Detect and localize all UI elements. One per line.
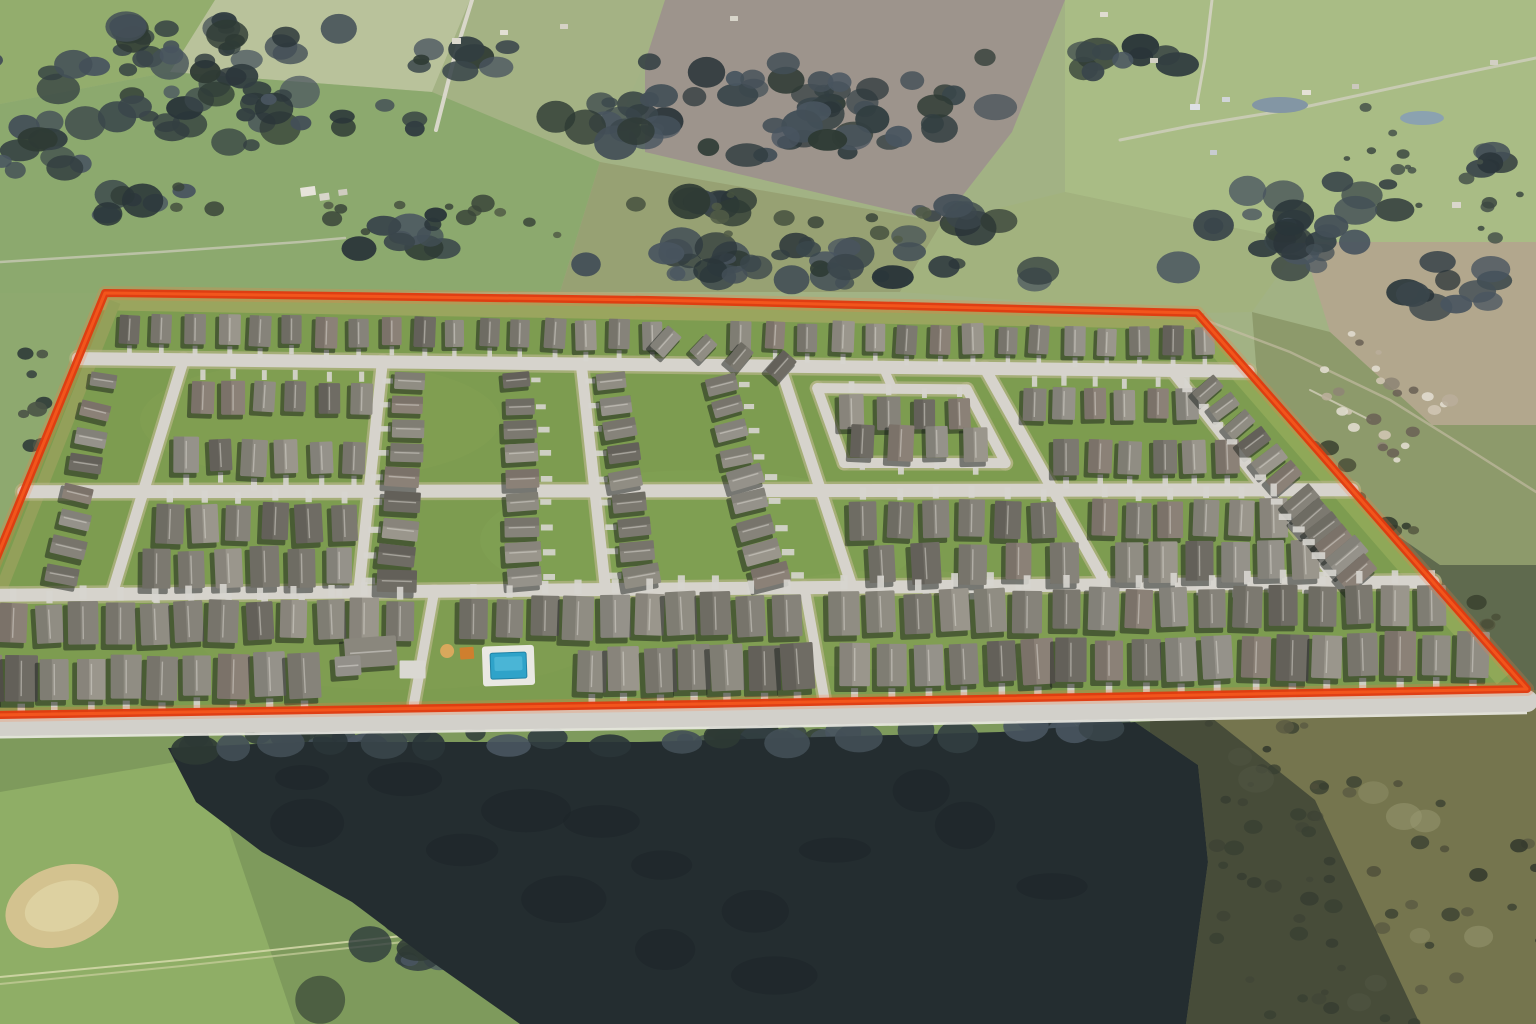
house: [1005, 543, 1031, 580]
forest-dark-blotch: [893, 769, 950, 812]
forest-edge-canopy: [589, 734, 631, 757]
house: [1201, 635, 1234, 680]
house: [503, 420, 537, 440]
driveway: [200, 370, 205, 381]
driveway: [507, 585, 513, 597]
house: [392, 419, 425, 438]
driveway: [886, 384, 891, 395]
driveway: [1293, 526, 1305, 532]
forest-edge-canopy: [412, 731, 445, 760]
driveway: [290, 586, 296, 598]
house: [839, 643, 870, 687]
house: [40, 659, 69, 700]
aerial-photo-canvas: [0, 0, 1536, 1024]
house: [0, 603, 28, 643]
house: [504, 517, 539, 537]
driveway: [1024, 575, 1031, 589]
house: [1380, 585, 1409, 626]
house: [248, 315, 271, 347]
pavilion-orange-roof: [460, 647, 475, 660]
driveway: [541, 525, 553, 531]
house: [1165, 637, 1198, 682]
driveway: [220, 584, 227, 598]
house: [575, 320, 597, 351]
driveway: [185, 586, 192, 599]
house: [1185, 541, 1213, 581]
forest-dark-blotch: [367, 762, 442, 796]
driveway: [470, 584, 477, 597]
driveway: [540, 499, 551, 505]
driveway: [1227, 439, 1238, 444]
house: [612, 491, 648, 513]
house: [850, 424, 875, 458]
driveway: [791, 572, 804, 578]
driveway: [262, 370, 267, 380]
house: [1091, 499, 1118, 536]
pond: [1252, 97, 1308, 113]
house: [342, 442, 366, 475]
house: [865, 590, 896, 633]
house: [1192, 499, 1219, 537]
forest-dark-blotch: [426, 834, 498, 866]
driveway: [536, 404, 546, 409]
driveway: [1356, 571, 1362, 584]
driveway: [306, 490, 312, 503]
house: [608, 319, 630, 350]
driveway: [1203, 486, 1209, 498]
driveway: [293, 370, 298, 380]
house: [925, 426, 948, 458]
driveway: [152, 588, 159, 601]
house: [384, 466, 420, 488]
driveway: [1271, 499, 1283, 505]
house: [619, 540, 655, 562]
distant-building: [1490, 60, 1498, 65]
house: [1182, 440, 1207, 475]
house: [383, 491, 421, 514]
house: [479, 318, 500, 347]
driveway: [1213, 422, 1223, 427]
house: [1055, 637, 1087, 682]
house: [1269, 585, 1298, 626]
driveway: [1271, 484, 1277, 497]
house: [146, 656, 178, 701]
house: [1064, 326, 1086, 356]
driveway: [117, 587, 124, 601]
house: [106, 602, 136, 644]
house: [596, 371, 627, 391]
house: [998, 327, 1018, 355]
house: [214, 548, 243, 588]
house: [1095, 640, 1123, 680]
house: [111, 655, 142, 699]
house: [914, 399, 935, 429]
forest-dark-blotch: [635, 929, 695, 970]
driveway: [987, 572, 994, 586]
forest-dark-blotch: [631, 851, 692, 880]
house: [280, 600, 308, 638]
swimming-pool: [490, 652, 527, 679]
driveway: [849, 381, 855, 392]
house: [348, 319, 369, 348]
house: [1113, 390, 1135, 421]
driveway: [359, 372, 364, 382]
house: [831, 320, 855, 352]
house: [504, 443, 538, 464]
driveway: [922, 388, 927, 398]
house: [939, 588, 971, 632]
house: [665, 591, 698, 636]
house: [506, 492, 540, 513]
driveway: [784, 580, 791, 594]
house: [1125, 502, 1151, 538]
driveway: [1209, 575, 1215, 588]
driveway: [769, 498, 781, 504]
distant-building: [730, 16, 738, 21]
house: [253, 381, 276, 413]
house: [1147, 388, 1168, 418]
driveway: [1041, 489, 1047, 501]
driveway: [1005, 487, 1011, 499]
forest-dark-blotch: [722, 890, 789, 933]
house: [507, 566, 543, 588]
house: [118, 315, 140, 345]
driveway: [397, 587, 403, 600]
house: [562, 595, 595, 640]
driveway: [342, 492, 348, 504]
house: [190, 504, 219, 544]
house: [895, 325, 917, 356]
driveway: [80, 585, 87, 599]
driveway: [1182, 387, 1192, 392]
driveway: [969, 486, 975, 498]
driveway: [1240, 458, 1251, 464]
house: [1159, 587, 1189, 628]
driveway: [1093, 377, 1098, 387]
distant-building: [1190, 104, 1200, 110]
house: [1153, 440, 1177, 474]
house: [253, 651, 286, 697]
driveway: [877, 576, 884, 589]
house: [386, 601, 415, 641]
house: [949, 643, 979, 685]
house: [459, 599, 488, 640]
driveway: [1100, 571, 1107, 585]
house: [987, 640, 1017, 682]
aerial-photo: [0, 0, 1536, 1024]
house: [903, 593, 933, 634]
driveway: [167, 490, 173, 503]
house: [77, 659, 106, 700]
forest-edge-canopy: [937, 720, 978, 753]
house: [377, 543, 416, 568]
house: [765, 321, 786, 349]
driveway: [1136, 490, 1142, 502]
house: [958, 499, 985, 537]
house: [1275, 634, 1309, 681]
driveway: [46, 591, 52, 603]
forest-dark-blotch: [799, 838, 871, 863]
house: [5, 655, 38, 702]
house: [994, 501, 1022, 540]
house: [1117, 441, 1142, 475]
parking-lot: [400, 660, 426, 678]
house: [849, 501, 878, 541]
driveway: [1392, 570, 1399, 583]
driveway: [1199, 404, 1209, 409]
house: [797, 324, 817, 353]
forest-dark-blotch: [275, 765, 329, 790]
forest-dark-blotch: [270, 799, 344, 847]
house: [1157, 501, 1183, 538]
house: [1162, 325, 1184, 355]
house: [779, 642, 815, 691]
house: [394, 372, 425, 391]
driveway: [612, 579, 619, 593]
driveway: [754, 454, 765, 459]
house: [68, 601, 99, 645]
house: [390, 443, 424, 463]
driveway: [1102, 485, 1108, 497]
house: [382, 317, 402, 345]
driveway: [543, 574, 555, 580]
house: [887, 424, 914, 462]
forest-dark-blotch: [935, 802, 995, 849]
house: [644, 647, 677, 693]
driveway: [543, 549, 556, 555]
house: [261, 502, 289, 540]
house: [505, 398, 534, 415]
house: [828, 591, 860, 636]
house: [505, 469, 539, 489]
forest-dark-blotch: [521, 876, 606, 923]
driveway: [782, 549, 795, 555]
driveway: [328, 585, 334, 598]
clubhouse: [334, 655, 361, 677]
driveway: [230, 368, 236, 379]
house: [772, 594, 803, 637]
house: [184, 314, 206, 345]
house: [543, 318, 566, 350]
house: [349, 597, 379, 639]
forest-edge-canopy: [764, 728, 810, 758]
house: [392, 396, 424, 414]
distant-building: [560, 24, 568, 29]
distant-building: [1150, 58, 1158, 63]
driveway: [915, 579, 922, 592]
driveway: [1279, 514, 1292, 520]
house: [182, 655, 211, 695]
house: [1084, 388, 1107, 420]
driveway: [1061, 375, 1066, 386]
driveway: [257, 588, 263, 600]
pond: [1400, 111, 1444, 125]
house: [240, 439, 268, 477]
distant-building: [1352, 84, 1359, 89]
distant-building: [1210, 150, 1217, 155]
driveway: [10, 589, 16, 602]
driveway: [541, 476, 553, 482]
distant-building: [1302, 90, 1311, 95]
house: [140, 603, 171, 646]
patio-circle: [440, 644, 454, 658]
house: [948, 398, 971, 429]
house: [413, 316, 436, 347]
house: [209, 439, 233, 472]
driveway: [1280, 570, 1287, 583]
driveway: [540, 450, 551, 456]
driveway: [646, 579, 653, 592]
driveway: [327, 372, 332, 382]
driveway: [1239, 487, 1245, 499]
forest-dark-blotch: [1016, 873, 1087, 900]
house: [225, 505, 251, 541]
house: [294, 503, 324, 543]
house: [219, 314, 241, 345]
house: [877, 644, 907, 687]
driveway: [775, 525, 787, 531]
driveway: [678, 575, 685, 589]
house: [1052, 589, 1080, 628]
house: [1232, 586, 1263, 629]
house: [445, 320, 464, 347]
house: [217, 654, 250, 700]
driveway: [1063, 575, 1069, 588]
house: [709, 643, 744, 691]
driveway: [1185, 376, 1190, 386]
distant-building: [452, 38, 461, 44]
house: [1384, 631, 1416, 676]
house: [1052, 387, 1076, 420]
house: [617, 516, 651, 538]
house: [1097, 328, 1117, 356]
driveway: [1319, 572, 1326, 585]
forest-dark-blotch: [295, 976, 345, 1024]
house: [246, 601, 275, 640]
house: [1124, 589, 1153, 629]
house: [958, 544, 987, 585]
house: [1088, 587, 1120, 631]
house: [735, 595, 766, 638]
house: [600, 595, 631, 638]
driveway: [538, 427, 549, 433]
driveway: [1312, 552, 1326, 559]
house: [377, 569, 417, 592]
driveway: [951, 573, 958, 587]
house: [1028, 325, 1050, 355]
driveway: [712, 575, 719, 589]
forest-edge-canopy: [486, 734, 531, 757]
house: [910, 542, 942, 585]
driveway: [235, 492, 241, 504]
house: [1132, 639, 1162, 681]
house: [1345, 585, 1374, 625]
house: [326, 547, 352, 583]
driveway: [765, 474, 777, 480]
house: [922, 500, 950, 538]
house: [1347, 633, 1379, 677]
house: [1012, 591, 1042, 634]
distant-building: [1222, 97, 1230, 102]
house: [178, 551, 205, 589]
driveway: [1032, 376, 1037, 387]
street: [24, 490, 1352, 492]
driveway: [957, 387, 962, 397]
house: [315, 317, 338, 349]
driveway: [897, 489, 903, 501]
driveway: [1255, 475, 1266, 481]
driveway: [202, 490, 208, 503]
distant-building: [1452, 202, 1461, 208]
house: [249, 545, 280, 587]
house: [287, 652, 322, 699]
house: [288, 549, 316, 589]
house: [1311, 635, 1343, 679]
house: [963, 427, 988, 462]
house: [191, 381, 215, 414]
house: [699, 591, 731, 635]
driveway: [574, 580, 581, 594]
house: [142, 549, 170, 589]
distant-building: [319, 193, 330, 201]
house: [1422, 635, 1451, 676]
house: [887, 501, 914, 539]
driveway: [361, 582, 368, 596]
driveway: [1156, 377, 1161, 387]
driveway: [531, 378, 540, 383]
house: [1053, 439, 1079, 476]
forest-dark-blotch: [731, 956, 817, 994]
house: [504, 541, 541, 563]
driveway: [933, 486, 939, 498]
forest-dark-blotch: [481, 789, 571, 832]
house: [502, 371, 530, 389]
driveway: [1171, 573, 1177, 586]
house: [1241, 636, 1271, 678]
house: [607, 646, 639, 691]
driveway: [1136, 575, 1142, 588]
house: [530, 595, 559, 636]
house: [35, 604, 64, 644]
forest-edge-canopy: [171, 735, 220, 765]
driveway: [840, 575, 847, 589]
house: [929, 325, 951, 355]
forest-dark-blotch: [563, 805, 639, 838]
house: [155, 504, 185, 545]
house: [496, 599, 524, 638]
driveway: [739, 382, 750, 387]
house: [150, 314, 172, 344]
driveway: [860, 487, 866, 500]
distant-building: [500, 30, 508, 35]
house: [284, 381, 306, 412]
house: [317, 599, 347, 640]
driveway: [1122, 379, 1127, 389]
house: [1088, 439, 1113, 474]
distant-building: [338, 189, 348, 196]
house: [350, 383, 373, 415]
house: [914, 644, 944, 686]
house: [1129, 326, 1150, 356]
driveway: [1244, 571, 1251, 585]
driveway: [542, 581, 549, 594]
forest-edge-canopy: [835, 723, 883, 752]
forest-edge-canopy: [216, 734, 250, 762]
house: [310, 441, 334, 474]
house: [281, 315, 301, 344]
house: [207, 599, 239, 643]
house: [273, 439, 298, 474]
